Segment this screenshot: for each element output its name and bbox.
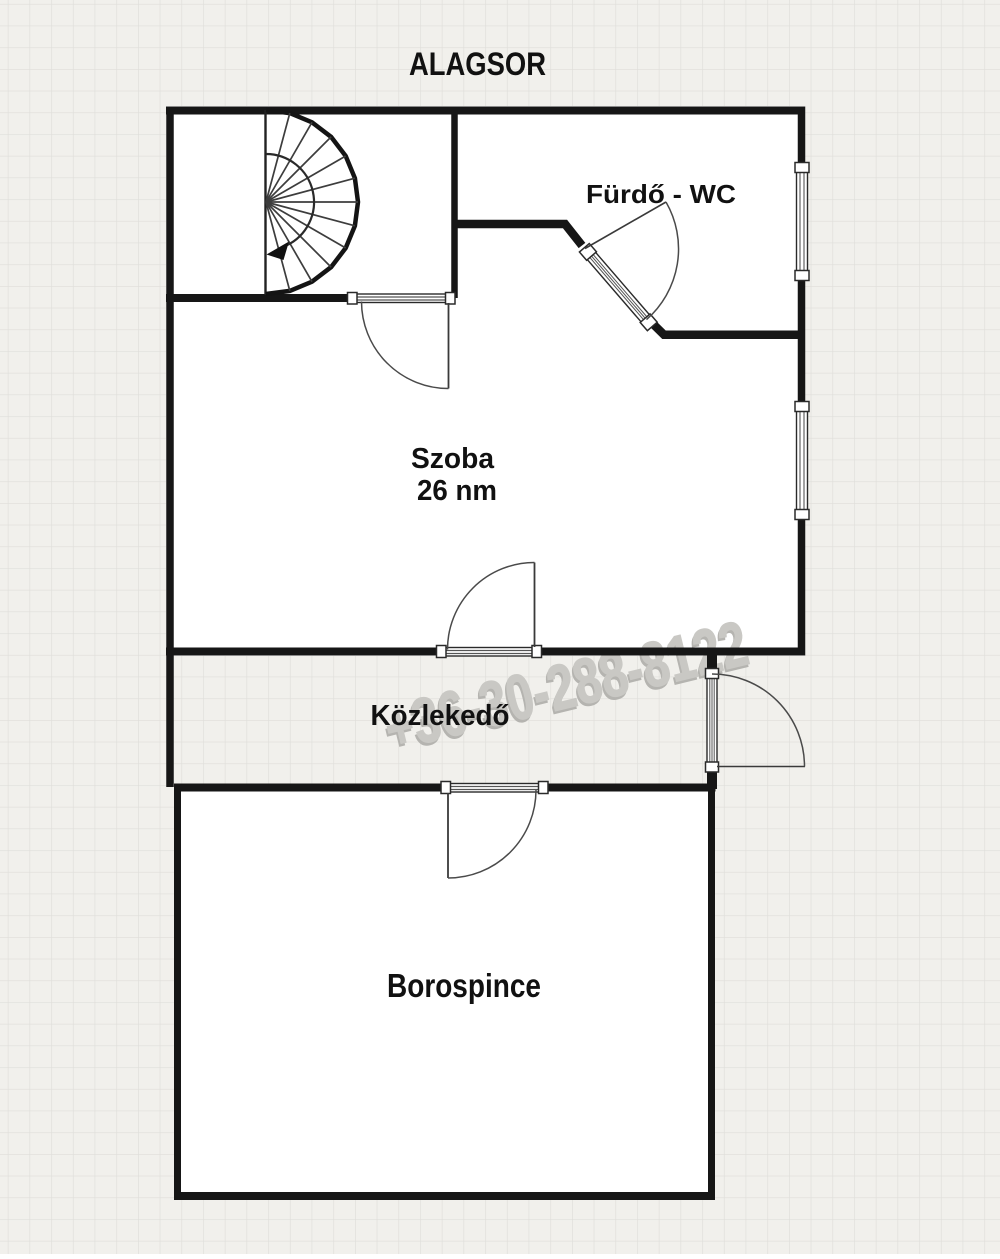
svg-text:26 nm: 26 nm [417, 475, 497, 507]
svg-text:ALAGSOR: ALAGSOR [409, 46, 546, 82]
svg-text:Borospince: Borospince [387, 967, 541, 1004]
svg-text:Fürdő - WC: Fürdő - WC [586, 179, 736, 209]
svg-text:Közlekedő: Közlekedő [371, 700, 510, 732]
svg-text:Szoba: Szoba [411, 443, 495, 475]
